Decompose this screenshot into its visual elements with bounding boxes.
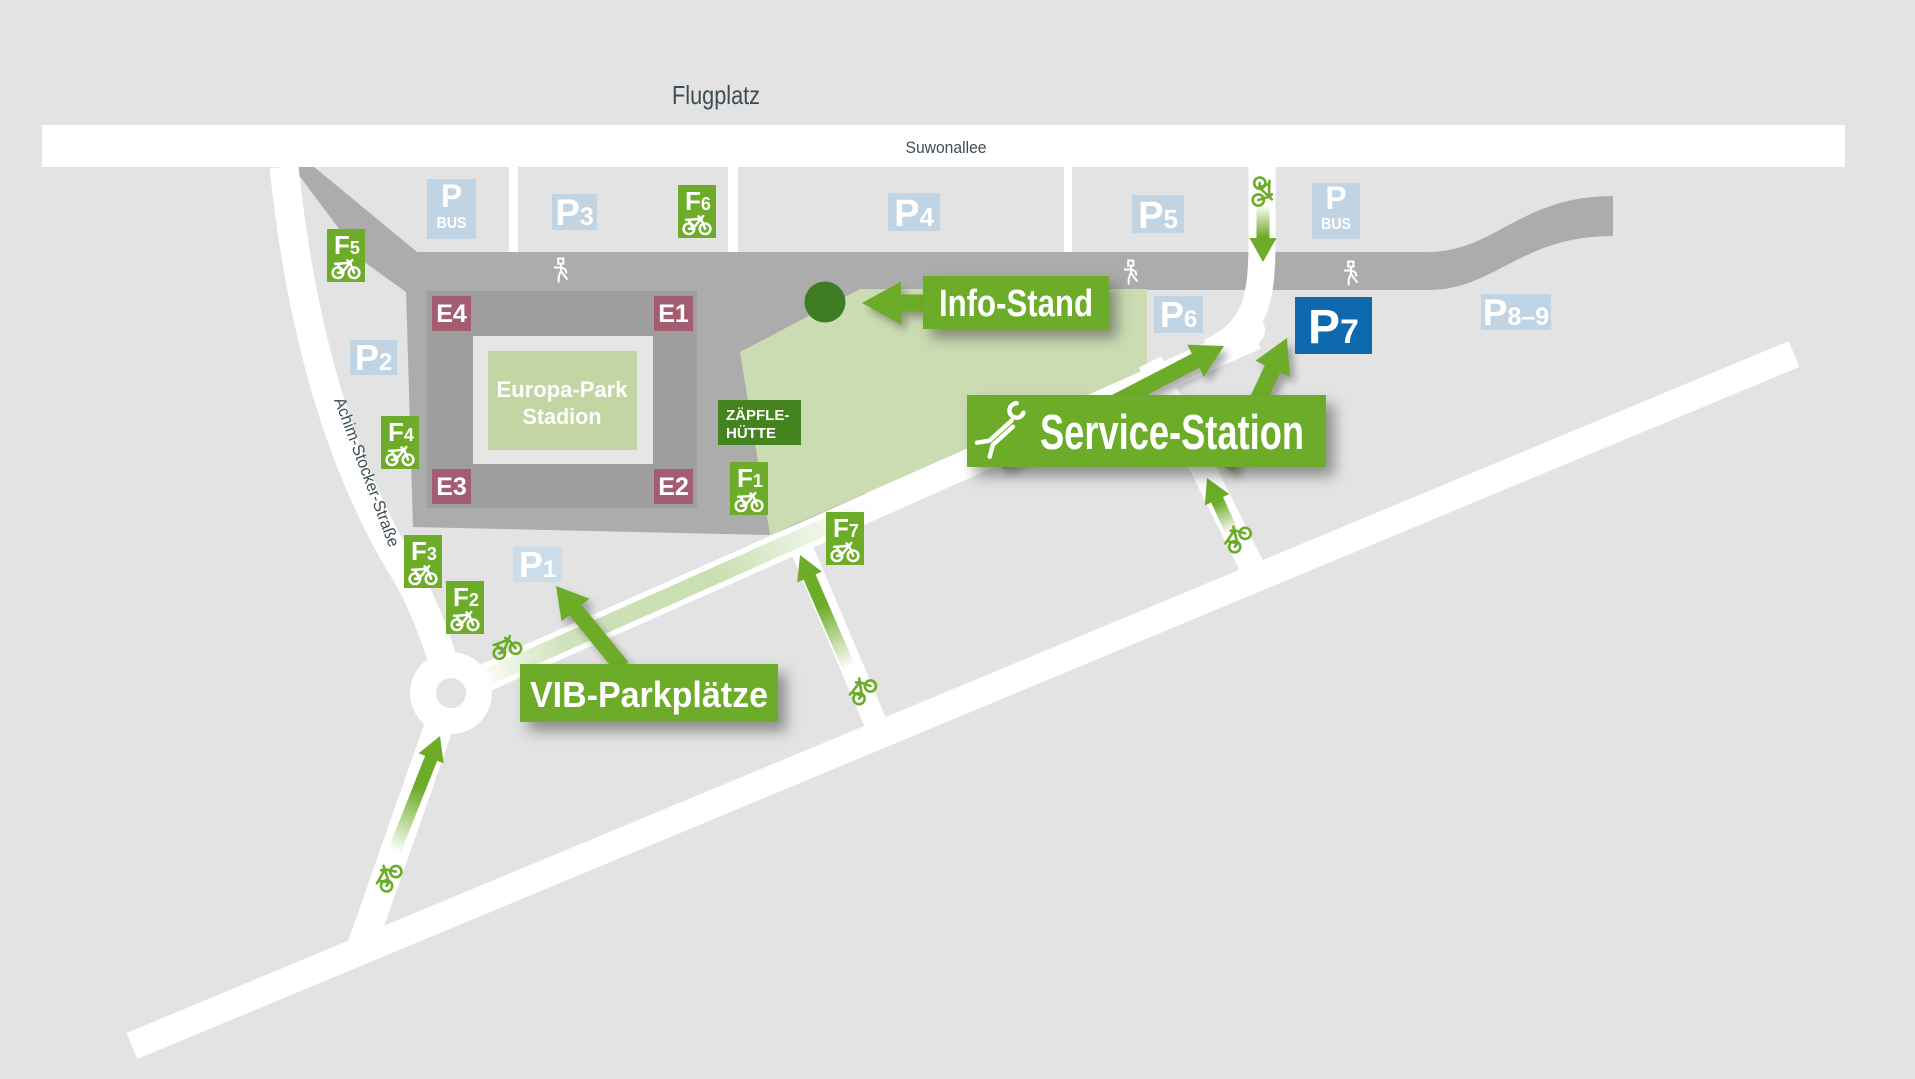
svg-text:Info-Stand: Info-Stand	[939, 283, 1093, 325]
svg-text:Stadion: Stadion	[523, 404, 602, 429]
svg-text:VIB-Parkplätze: VIB-Parkplätze	[530, 674, 768, 715]
svg-text:Suwonallee: Suwonallee	[906, 138, 987, 157]
svg-text:Europa-Park: Europa-Park	[497, 377, 629, 402]
svg-text:E2: E2	[658, 473, 689, 501]
svg-text:P: P	[441, 178, 462, 214]
svg-text:ZÄPFLE-: ZÄPFLE-	[726, 407, 789, 424]
svg-text:Service-Station: Service-Station	[1040, 406, 1304, 460]
svg-text:E1: E1	[658, 300, 689, 328]
svg-text:BUS: BUS	[437, 215, 467, 232]
svg-text:P: P	[1325, 180, 1346, 216]
svg-text:E4: E4	[436, 300, 467, 328]
svg-text:HÜTTE: HÜTTE	[726, 425, 776, 442]
svg-text:BUS: BUS	[1321, 216, 1351, 233]
svg-text:E3: E3	[436, 473, 467, 501]
svg-text:Flugplatz: Flugplatz	[672, 80, 760, 110]
